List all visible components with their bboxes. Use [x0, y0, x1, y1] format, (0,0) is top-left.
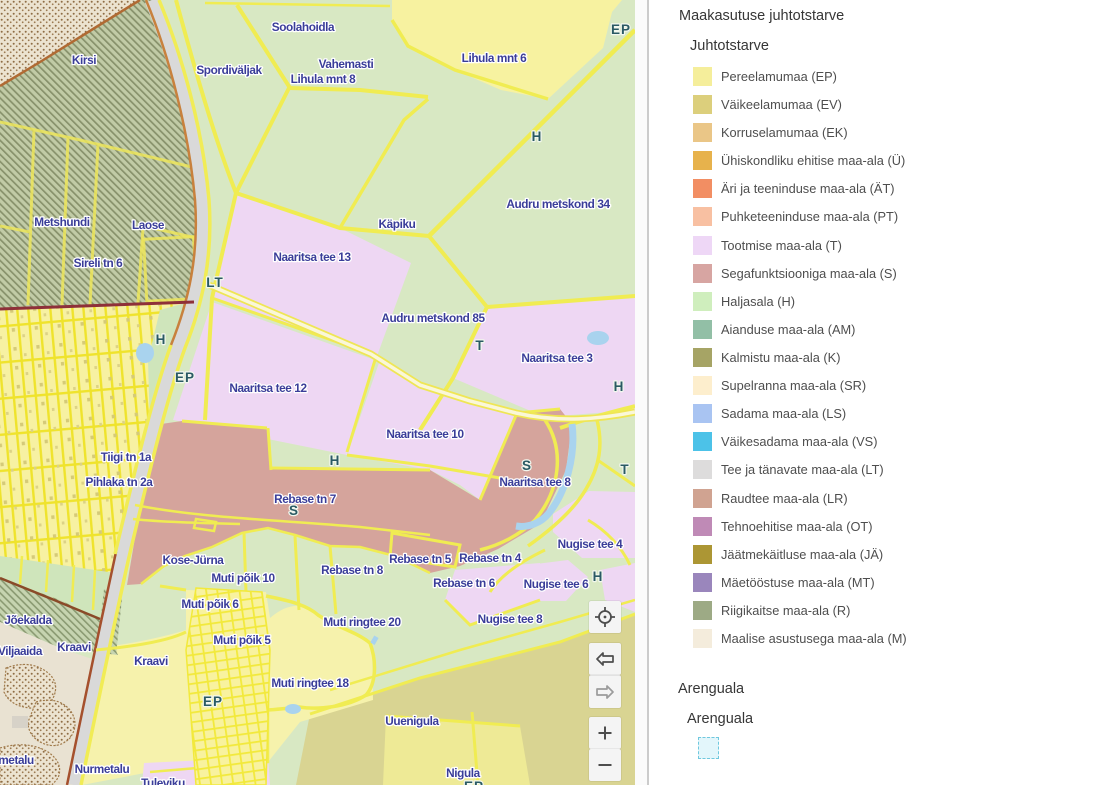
svg-text:Muti ringtee 20: Muti ringtee 20 — [323, 615, 401, 629]
svg-text:Naaritsa tee 13: Naaritsa tee 13 — [273, 250, 351, 264]
svg-text:Laose: Laose — [132, 218, 165, 232]
svg-text:Muti põik 5: Muti põik 5 — [213, 633, 271, 647]
svg-text:Rebase tn 4: Rebase tn 4 — [459, 551, 522, 565]
svg-text:Rebase tn 7: Rebase tn 7 — [274, 492, 337, 506]
svg-text:Rebase tn 8: Rebase tn 8 — [321, 563, 384, 577]
svg-text:Spordiväljak: Spordiväljak — [196, 63, 262, 77]
svg-text:Uuenigula: Uuenigula — [385, 714, 439, 728]
svg-text:Audru metskond 34: Audru metskond 34 — [506, 197, 610, 211]
svg-text:Tiigi tn 1a: Tiigi tn 1a — [101, 450, 152, 464]
svg-text:Jõekalda: Jõekalda — [4, 613, 52, 627]
svg-text:Lihula mnt 8: Lihula mnt 8 — [291, 72, 357, 86]
svg-text:Naaritsa tee 12: Naaritsa tee 12 — [229, 381, 307, 395]
svg-text:Rebase tn 5: Rebase tn 5 — [389, 552, 452, 566]
svg-text:Vahemasti: Vahemasti — [319, 57, 374, 71]
svg-text:H: H — [593, 569, 604, 584]
svg-text:metalu: metalu — [0, 753, 34, 767]
svg-text:Nugise tee 6: Nugise tee 6 — [524, 577, 590, 591]
svg-text:Sireli tn 6: Sireli tn 6 — [74, 256, 124, 270]
svg-text:Kose-Jürna: Kose-Jürna — [163, 553, 225, 567]
svg-text:LT: LT — [206, 275, 224, 290]
svg-text:Lihula mnt 6: Lihula mnt 6 — [462, 51, 528, 65]
svg-text:Kraavi: Kraavi — [134, 654, 168, 668]
svg-text:Naaritsa tee 8: Naaritsa tee 8 — [499, 475, 571, 489]
svg-text:Kraavi: Kraavi — [57, 640, 91, 654]
svg-text:T: T — [475, 338, 484, 353]
svg-text:Muti põik 10: Muti põik 10 — [211, 571, 275, 585]
svg-text:Tuleviku: Tuleviku — [141, 776, 185, 785]
svg-text:Nugise tee 8: Nugise tee 8 — [478, 612, 544, 626]
svg-text:Kirsi: Kirsi — [72, 53, 96, 67]
svg-text:Nurmetalu: Nurmetalu — [75, 762, 130, 776]
svg-text:S: S — [522, 458, 532, 473]
svg-text:EP: EP — [175, 370, 195, 385]
svg-text:Rebase tn 6: Rebase tn 6 — [433, 576, 496, 590]
svg-text:Viljaaida: Viljaaida — [0, 644, 43, 658]
svg-text:S: S — [289, 503, 299, 518]
svg-text:H: H — [330, 453, 341, 468]
svg-text:EP: EP — [611, 22, 631, 37]
svg-text:Nigula: Nigula — [446, 766, 480, 780]
svg-text:Soolahoidla: Soolahoidla — [272, 20, 335, 34]
svg-text:Nugise tee 4: Nugise tee 4 — [558, 537, 624, 551]
svg-text:Muti ringtee 18: Muti ringtee 18 — [271, 676, 349, 690]
svg-text:EP: EP — [464, 779, 484, 785]
svg-text:H: H — [614, 379, 625, 394]
svg-text:Audru metskond 85: Audru metskond 85 — [381, 311, 485, 325]
svg-text:T: T — [620, 462, 629, 477]
svg-text:H: H — [156, 332, 167, 347]
svg-text:Muti põik 6: Muti põik 6 — [181, 597, 239, 611]
svg-text:EP: EP — [203, 694, 223, 709]
svg-text:Metshundi: Metshundi — [34, 215, 90, 229]
svg-text:H: H — [532, 129, 543, 144]
svg-text:Naaritsa tee 10: Naaritsa tee 10 — [386, 427, 464, 441]
svg-text:Käpiku: Käpiku — [379, 217, 416, 231]
svg-text:Naaritsa tee 3: Naaritsa tee 3 — [521, 351, 593, 365]
svg-text:Pihlaka tn 2a: Pihlaka tn 2a — [86, 475, 154, 489]
